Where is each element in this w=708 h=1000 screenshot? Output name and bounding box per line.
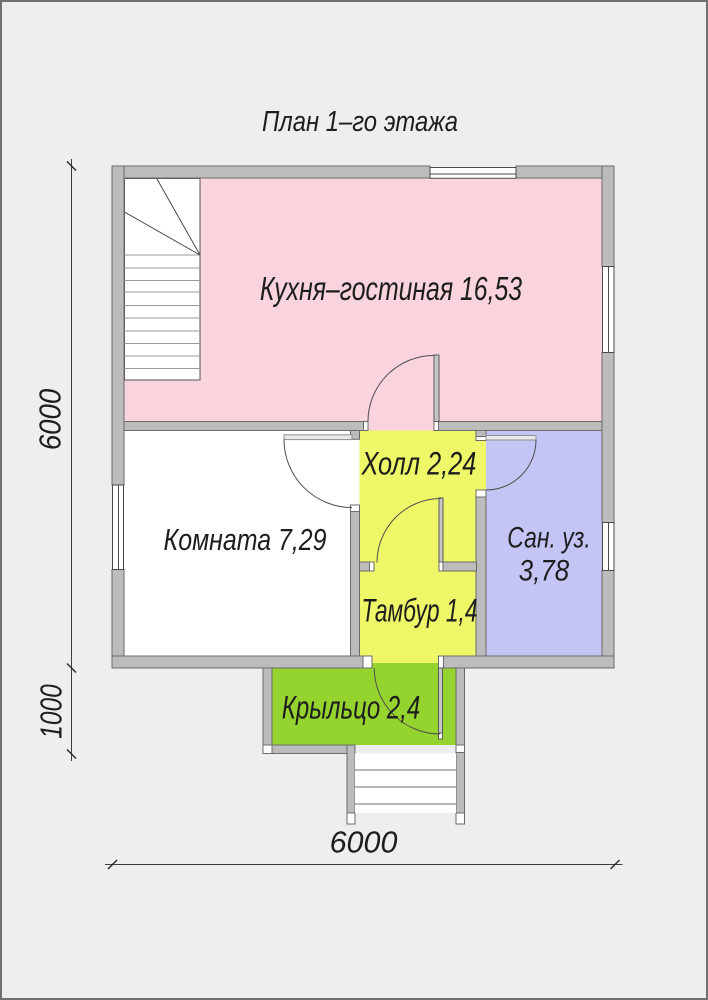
svg-text:Тамбур 1,4: Тамбур 1,4 [361, 593, 477, 629]
svg-text:3,78: 3,78 [519, 554, 570, 587]
svg-text:Комната 7,29: Комната 7,29 [164, 522, 327, 556]
svg-text:Крыльцо 2,4: Крыльцо 2,4 [282, 689, 421, 725]
svg-text:Сан. уз.: Сан. уз. [507, 521, 590, 555]
svg-text:6000: 6000 [33, 388, 68, 450]
svg-text:Кухня–гостиная 16,53: Кухня–гостиная 16,53 [260, 272, 522, 308]
svg-text:1000: 1000 [34, 684, 68, 739]
svg-text:Холл 2,24: Холл 2,24 [361, 447, 477, 482]
svg-text:План 1–го этажа: План 1–го этажа [262, 105, 458, 138]
svg-text:6000: 6000 [330, 824, 398, 859]
